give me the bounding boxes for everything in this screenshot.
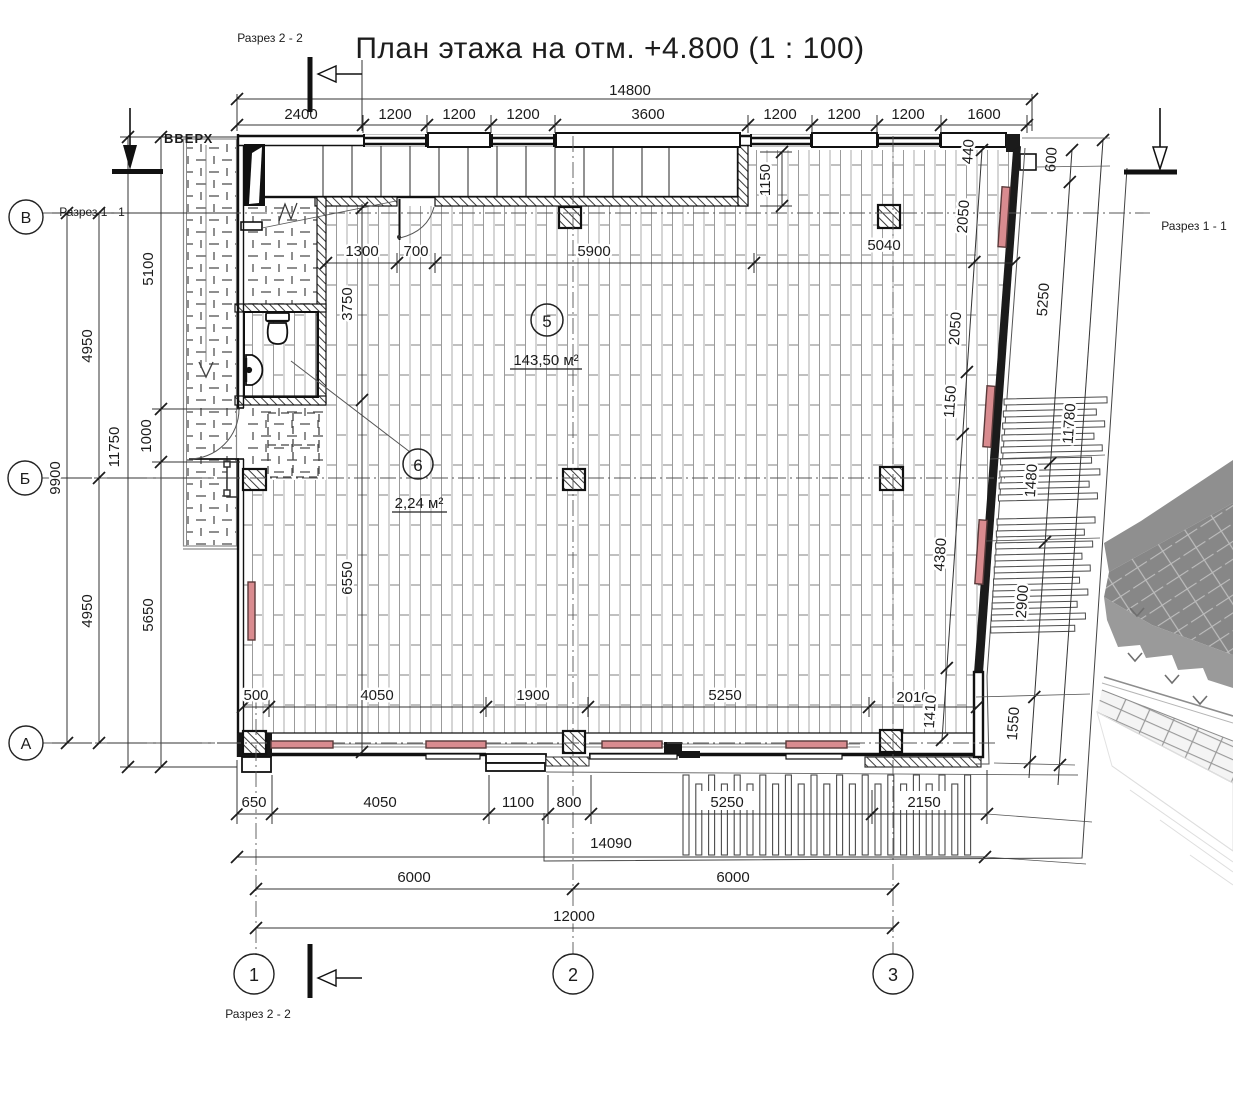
svg-text:2150: 2150 — [907, 794, 940, 811]
svg-text:4380: 4380 — [931, 537, 950, 571]
svg-text:1410: 1410 — [921, 694, 940, 728]
svg-text:700: 700 — [403, 243, 428, 260]
svg-text:1900: 1900 — [516, 687, 549, 704]
svg-text:1200: 1200 — [827, 106, 860, 123]
svg-text:2900: 2900 — [1013, 584, 1032, 618]
svg-text:600: 600 — [1042, 147, 1061, 173]
svg-text:2,24 м²: 2,24 м² — [395, 495, 444, 512]
svg-text:ВВЕРХ: ВВЕРХ — [164, 131, 213, 146]
svg-text:800: 800 — [556, 794, 581, 811]
svg-text:5040: 5040 — [867, 237, 900, 254]
svg-text:В: В — [21, 210, 32, 227]
svg-text:Разрез 1 - 1: Разрез 1 - 1 — [59, 205, 125, 219]
svg-text:6000: 6000 — [716, 869, 749, 886]
svg-text:11780: 11780 — [1060, 403, 1080, 445]
svg-text:4050: 4050 — [360, 687, 393, 704]
svg-text:Б: Б — [20, 471, 31, 488]
svg-text:5100: 5100 — [140, 252, 157, 285]
svg-text:1150: 1150 — [757, 164, 774, 196]
svg-text:2050: 2050 — [954, 199, 973, 233]
svg-text:1200: 1200 — [763, 106, 796, 123]
svg-text:1200: 1200 — [506, 106, 539, 123]
svg-text:2: 2 — [568, 965, 578, 985]
svg-text:1200: 1200 — [442, 106, 475, 123]
svg-text:14800: 14800 — [609, 82, 651, 99]
svg-text:5900: 5900 — [577, 243, 610, 260]
svg-text:1150: 1150 — [941, 385, 960, 418]
svg-text:1000: 1000 — [138, 419, 155, 452]
svg-text:1480: 1480 — [1022, 463, 1041, 497]
svg-text:6: 6 — [413, 456, 422, 475]
svg-text:План этажа на отм. +4.800 (1 :: План этажа на отм. +4.800 (1 : 100) — [355, 32, 864, 65]
svg-text:440: 440 — [959, 139, 978, 165]
svg-text:6000: 6000 — [397, 869, 430, 886]
svg-text:2400: 2400 — [284, 106, 317, 123]
svg-text:А: А — [21, 736, 32, 753]
svg-text:4950: 4950 — [79, 329, 96, 362]
svg-text:1200: 1200 — [891, 106, 924, 123]
svg-text:3600: 3600 — [631, 106, 664, 123]
svg-text:11750: 11750 — [106, 427, 123, 468]
svg-text:1600: 1600 — [967, 106, 1000, 123]
svg-text:6550: 6550 — [339, 561, 356, 594]
svg-text:143,50 м²: 143,50 м² — [513, 352, 578, 369]
svg-text:9900: 9900 — [47, 461, 64, 494]
svg-text:5250: 5250 — [710, 794, 743, 811]
svg-text:5: 5 — [542, 312, 551, 331]
svg-text:12000: 12000 — [553, 908, 595, 925]
svg-text:Разрез 1 - 1: Разрез 1 - 1 — [1161, 219, 1227, 233]
svg-text:Разрез 2 - 2: Разрез 2 - 2 — [225, 1007, 291, 1021]
svg-text:4050: 4050 — [363, 794, 396, 811]
svg-text:2050: 2050 — [946, 311, 965, 345]
svg-text:5250: 5250 — [1034, 282, 1053, 316]
svg-text:3: 3 — [888, 965, 898, 985]
svg-text:4950: 4950 — [79, 594, 96, 627]
svg-text:1: 1 — [249, 965, 259, 985]
svg-text:5250: 5250 — [708, 687, 741, 704]
svg-text:1550: 1550 — [1004, 706, 1023, 740]
svg-text:500: 500 — [243, 687, 268, 704]
svg-text:1100: 1100 — [502, 794, 534, 811]
svg-text:1200: 1200 — [378, 106, 411, 123]
svg-text:Разрез 2 - 2: Разрез 2 - 2 — [237, 31, 303, 45]
svg-text:3750: 3750 — [339, 287, 356, 320]
svg-text:5650: 5650 — [140, 598, 157, 631]
svg-text:650: 650 — [241, 794, 266, 811]
svg-text:14090: 14090 — [590, 835, 632, 852]
